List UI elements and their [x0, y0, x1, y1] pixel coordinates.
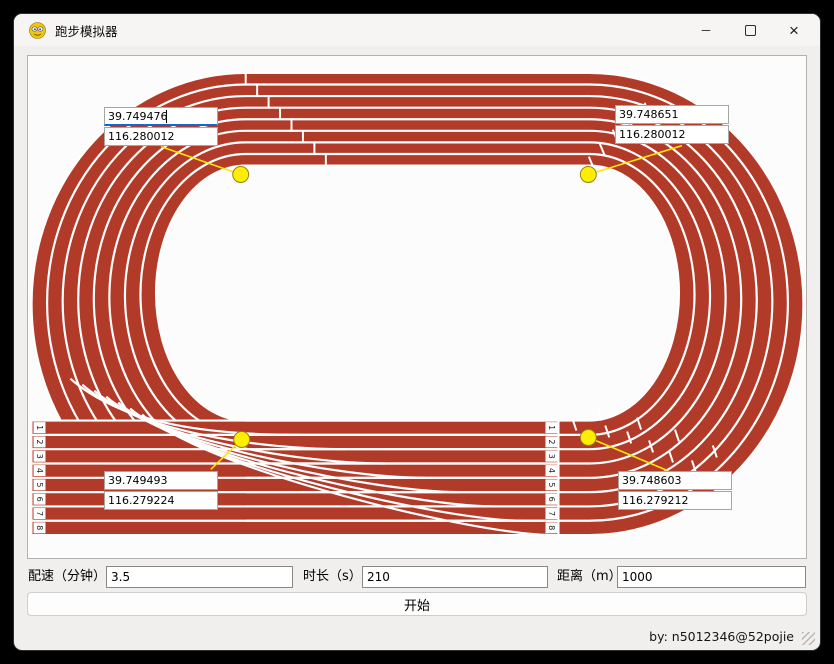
window-title: 跑步模拟器: [55, 21, 684, 40]
lane-number: 7: [547, 511, 556, 516]
lane-number: 5: [35, 482, 44, 487]
marker-lon-input[interactable]: [618, 491, 732, 510]
marker-lat-input[interactable]: [104, 471, 218, 490]
pace-label: 配速（分钟）:: [28, 566, 110, 588]
start-button[interactable]: 开始: [27, 592, 807, 616]
lane-number: 5: [547, 482, 556, 487]
lane-number: 8: [547, 525, 556, 530]
maximize-button[interactable]: [728, 14, 772, 46]
credit-text: by: n5012346@52pojie: [649, 629, 794, 644]
marker-lon-input[interactable]: [615, 125, 729, 144]
runner-dot-bottom-left: [234, 432, 250, 448]
marker-lat-input[interactable]: [104, 107, 218, 126]
runner-dot-top-right: [580, 167, 596, 183]
track-canvas: 1122334455667788: [27, 55, 807, 559]
lane-number: 3: [35, 454, 44, 459]
runner-dot-top-left: [233, 167, 249, 183]
marker-lon-input[interactable]: [104, 127, 218, 146]
maximize-icon: [745, 25, 756, 36]
close-icon: ×: [789, 22, 799, 39]
duration-input[interactable]: [362, 566, 548, 588]
lane-number: 3: [547, 454, 556, 459]
marker-lon-input[interactable]: [104, 491, 218, 510]
minimize-button[interactable]: ─: [684, 14, 728, 46]
lane-number: 2: [547, 439, 556, 444]
distance-label: 距离（m）:: [557, 566, 626, 588]
marker-label-bottom-right: [618, 471, 732, 511]
lane-number: 4: [35, 468, 44, 473]
marker-lat-input[interactable]: [618, 471, 732, 490]
lane-number: 6: [547, 497, 556, 502]
distance-input[interactable]: [617, 566, 806, 588]
text-cursor: [166, 110, 167, 123]
marker-label-top-right: [615, 105, 729, 145]
app-window: 跑步模拟器 ─ × 1122334455667788: [14, 14, 820, 650]
lane-number: 8: [35, 525, 44, 530]
lane-number: 2: [35, 439, 44, 444]
close-button[interactable]: ×: [772, 14, 816, 46]
marker-label-top-left: [104, 107, 218, 147]
titlebar: 跑步模拟器 ─ ×: [14, 14, 820, 46]
marker-lat-input[interactable]: [615, 105, 729, 124]
lane-number: 4: [547, 468, 556, 473]
minimize-icon: ─: [702, 24, 711, 36]
lane-number: 6: [35, 497, 44, 502]
lane-number: 1: [35, 425, 44, 430]
runner-dot-bottom-right: [580, 430, 596, 446]
marker-label-bottom-left: [104, 471, 218, 511]
lane-number: 7: [35, 511, 44, 516]
pace-input[interactable]: [106, 566, 293, 588]
duration-label: 时长（s）:: [303, 566, 366, 588]
app-icon: [29, 22, 46, 39]
lane-number: 1: [547, 425, 556, 430]
resize-grip[interactable]: [802, 632, 815, 645]
